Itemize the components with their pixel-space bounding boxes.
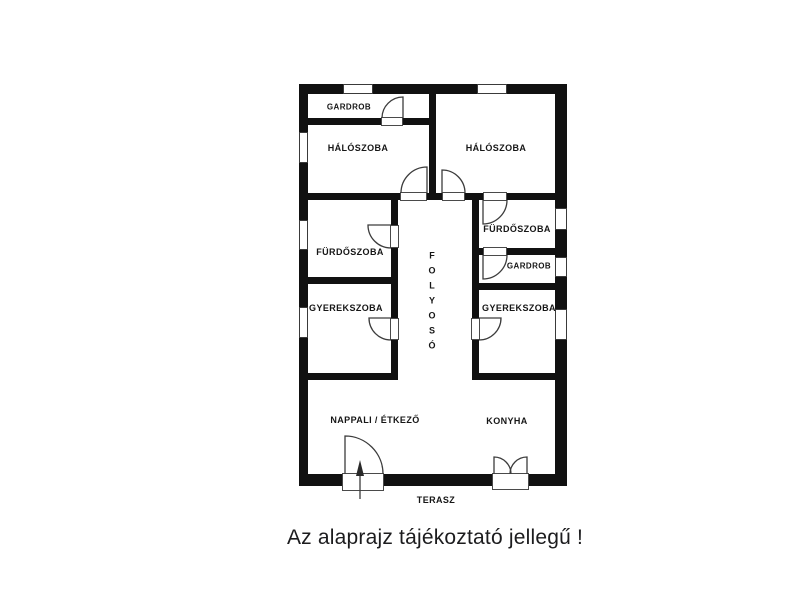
entrance-arrow-icon bbox=[356, 460, 364, 476]
door-gardrob-left-icon bbox=[382, 97, 403, 118]
door-child-right-icon bbox=[479, 318, 501, 340]
door-bath-left-icon bbox=[368, 225, 391, 248]
room-label-gardrob-right: GARDROB bbox=[507, 262, 551, 271]
door-bath-right-icon bbox=[483, 200, 507, 224]
room-label-terasz: TERASZ bbox=[417, 495, 455, 505]
room-label-haloszoba-right: HÁLÓSZOBA bbox=[466, 143, 527, 153]
room-label-furdoszoba-right: FÜRDŐSZOBA bbox=[483, 224, 551, 234]
room-label-gyerekszoba-left: GYEREKSZOBA bbox=[309, 303, 383, 313]
room-label-gyerekszoba-right: GYEREKSZOBA bbox=[482, 303, 556, 313]
door-bedroom-left-icon bbox=[401, 167, 427, 193]
door-child-left-icon bbox=[369, 318, 391, 340]
room-label-konyha: KONYHA bbox=[486, 416, 527, 426]
room-label-gardrob-left: GARDROB bbox=[327, 103, 371, 112]
caption-disclaimer: Az alaprajz tájékoztató jellegű ! bbox=[287, 526, 583, 550]
room-label-haloszoba-left: HÁLÓSZOBA bbox=[328, 143, 389, 153]
door-gardrob-right-icon bbox=[483, 255, 507, 279]
door-terrace-left-icon bbox=[494, 457, 511, 474]
room-label-nappali-etkezo: NAPPALI / ÉTKEZŐ bbox=[330, 415, 419, 425]
door-symbols-layer bbox=[0, 0, 800, 600]
room-label-folyoso: FOLYOSÓ bbox=[427, 251, 437, 356]
room-label-furdoszoba-left: FÜRDŐSZOBA bbox=[316, 247, 384, 257]
door-entrance-icon bbox=[345, 436, 383, 474]
door-terrace-right-icon bbox=[510, 457, 527, 474]
door-bedroom-right-icon bbox=[442, 170, 465, 193]
floor-plan-page: GARDROB HÁLÓSZOBA HÁLÓSZOBA FÜRDŐSZOBA F… bbox=[0, 0, 800, 600]
